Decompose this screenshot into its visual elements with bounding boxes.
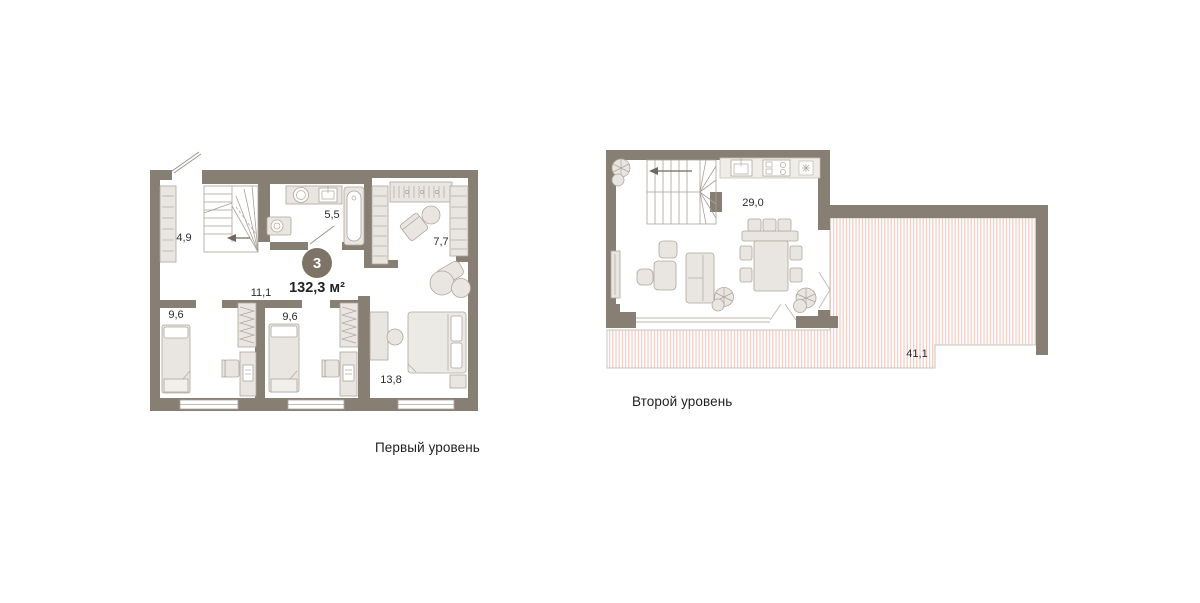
tv-console-icon xyxy=(611,251,620,298)
sofa-icon xyxy=(686,253,714,303)
coffee-table-icon xyxy=(422,206,440,224)
plant-icon xyxy=(712,288,734,312)
apartment-number-badge: 3 xyxy=(302,248,332,278)
room-area-label-bedroom-left: 9,6 xyxy=(168,309,183,321)
closet-icon xyxy=(390,182,452,202)
total-area-label: 132,3 м² xyxy=(289,280,345,296)
dining-table-icon xyxy=(740,219,802,291)
room-area-label-corridor: 11,1 xyxy=(251,287,272,299)
closet-icon xyxy=(372,186,388,264)
desk-icon xyxy=(370,312,403,360)
terrace-hatch xyxy=(607,218,1036,368)
room-area-label-bedroom-master: 13,8 xyxy=(380,374,401,386)
terrace-door-icon xyxy=(819,272,830,308)
chair-icon xyxy=(322,360,339,377)
desk-icon xyxy=(340,352,357,396)
chair-icon xyxy=(387,329,403,345)
desk-icon xyxy=(240,352,256,396)
closet-icon xyxy=(450,186,468,256)
apartment-number: 3 xyxy=(313,255,321,272)
pouf-icon xyxy=(637,269,653,285)
entry-door-icon xyxy=(172,152,201,173)
room-area-label-dressing: 7,7 xyxy=(433,236,448,248)
floorplan-page: 3 132,3 м² 4,9 5,5 7,7 11,1 9,6 9,6 13,8 xyxy=(0,0,1200,603)
chair-icon xyxy=(222,360,239,377)
sink-icon xyxy=(294,188,309,203)
room-area-label-bathroom: 5,5 xyxy=(324,209,339,221)
nightstand-icon xyxy=(450,375,466,388)
room-area-label-hallway: 4,9 xyxy=(176,232,191,244)
stairs-icon xyxy=(204,186,258,252)
level1-caption: Первый уровень xyxy=(375,440,480,455)
bedroom-master-furniture xyxy=(370,260,471,388)
stairs-icon xyxy=(647,160,716,224)
window-icon xyxy=(180,400,454,409)
plant-icon xyxy=(612,159,630,186)
stove-icon xyxy=(763,160,790,176)
level2-caption: Второй уровень xyxy=(632,394,732,409)
wardrobe-icon xyxy=(238,303,256,347)
appliance-icon xyxy=(799,161,813,175)
bathroom-fixtures xyxy=(267,186,364,245)
bed-icon xyxy=(162,325,190,393)
bathtub-icon xyxy=(344,187,364,245)
wardrobe-icon xyxy=(340,303,358,347)
level2-plan: 29,0 41,1 xyxy=(595,135,1070,380)
room-area-label-living-kitchen: 29,0 xyxy=(742,197,763,209)
plant-icon xyxy=(794,288,817,313)
level1-plan: 3 132,3 м² 4,9 5,5 7,7 11,1 9,6 9,6 13,8 xyxy=(140,150,500,470)
room-area-label-bedroom-middle: 9,6 xyxy=(282,311,297,323)
room-area-label-terrace: 41,1 xyxy=(906,348,927,360)
lounge-chair-icon xyxy=(654,261,676,290)
hall-wardrobe-icon xyxy=(160,186,176,262)
dressing-room-fixtures xyxy=(372,182,468,264)
lounge-chairs-icon xyxy=(430,260,471,298)
kitchen-counter xyxy=(720,158,820,178)
bed-icon xyxy=(269,324,299,392)
pouf-icon xyxy=(659,241,677,258)
sink-icon xyxy=(731,158,752,176)
bathroom-door-icon xyxy=(310,226,334,244)
double-bed-icon xyxy=(408,312,466,373)
washer-icon xyxy=(267,217,291,235)
